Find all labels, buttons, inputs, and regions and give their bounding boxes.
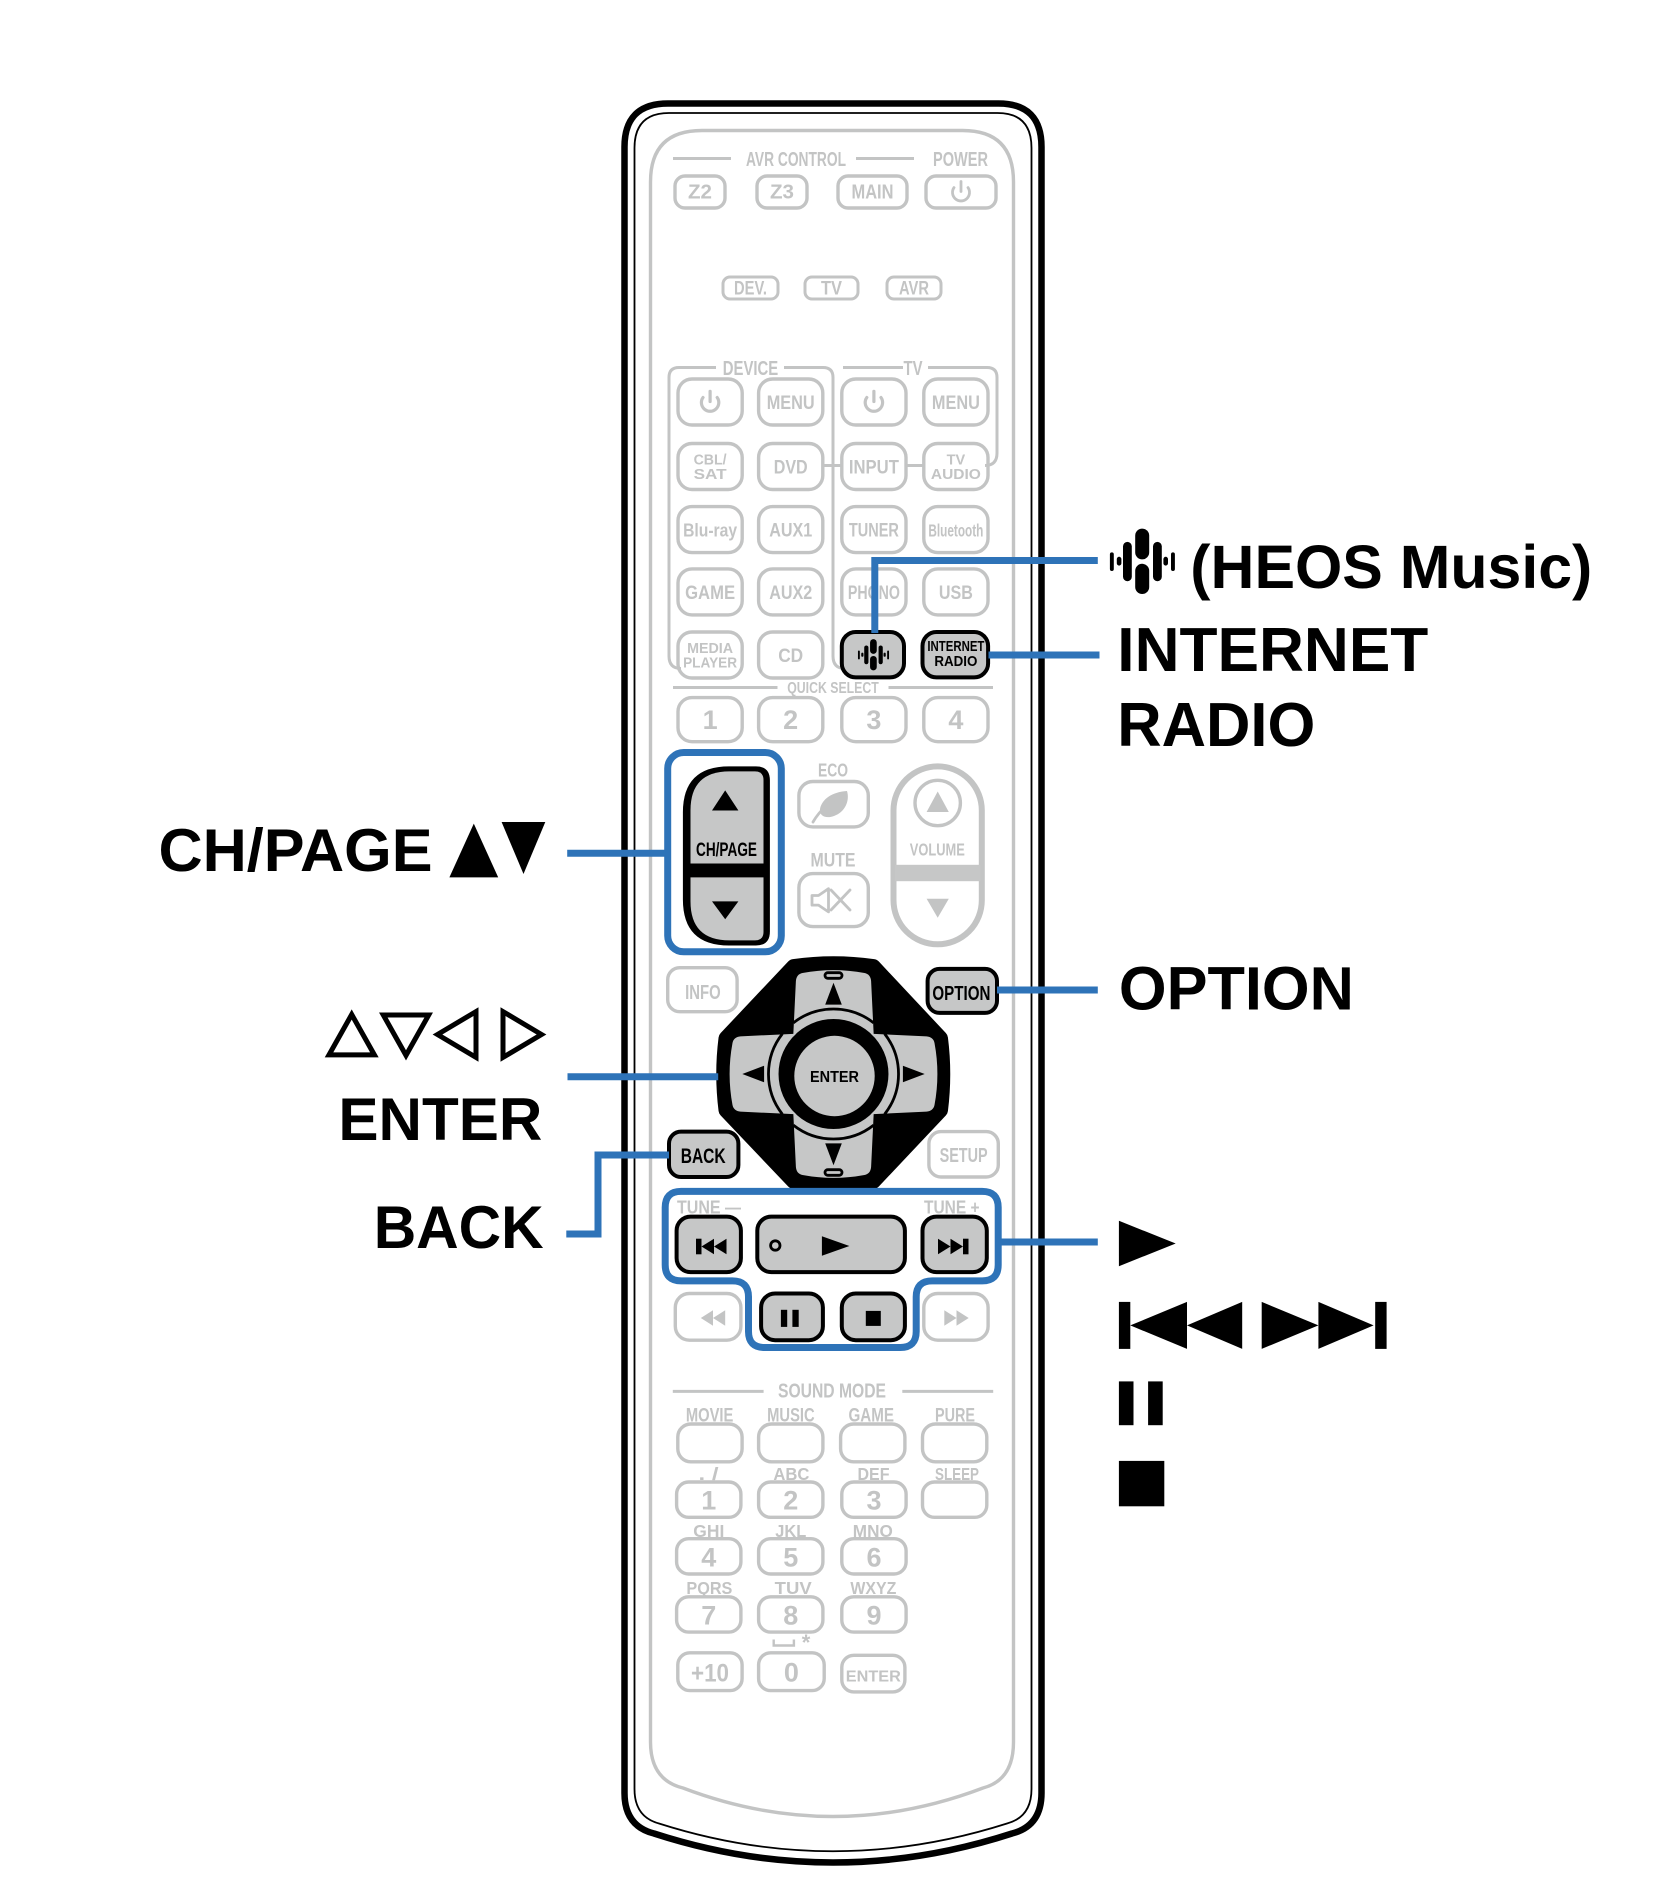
svg-text:TUNE —: TUNE — bbox=[677, 1197, 741, 1218]
svg-text:DEV.: DEV. bbox=[734, 279, 767, 300]
svg-text:MUTE: MUTE bbox=[811, 851, 856, 872]
svg-text:AVR CONTROL: AVR CONTROL bbox=[746, 149, 846, 171]
svg-text:AVR: AVR bbox=[899, 279, 929, 300]
svg-text:4: 4 bbox=[701, 1542, 716, 1572]
svg-text:ENTER: ENTER bbox=[846, 1668, 901, 1685]
svg-text:USB: USB bbox=[939, 582, 973, 604]
svg-text:BACK: BACK bbox=[374, 1194, 544, 1261]
svg-text:MENU: MENU bbox=[767, 392, 815, 414]
svg-text:7: 7 bbox=[701, 1601, 716, 1631]
svg-text:VOLUME: VOLUME bbox=[910, 839, 965, 859]
svg-text:DEVICE: DEVICE bbox=[723, 358, 779, 380]
svg-text:QUICK SELECT: QUICK SELECT bbox=[787, 680, 879, 697]
svg-text:ECO: ECO bbox=[818, 760, 848, 781]
svg-text:RADIO: RADIO bbox=[1117, 691, 1315, 760]
svg-text:4: 4 bbox=[948, 705, 963, 735]
svg-text:CH/PAGE: CH/PAGE bbox=[159, 817, 433, 884]
svg-text:PLAYER: PLAYER bbox=[683, 656, 737, 672]
svg-text:(HEOS Music): (HEOS Music) bbox=[1190, 533, 1592, 602]
svg-text:Bluetooth: Bluetooth bbox=[928, 521, 983, 541]
svg-text:DVD: DVD bbox=[774, 457, 808, 479]
svg-text:OPTION: OPTION bbox=[932, 983, 990, 1005]
svg-text:CD: CD bbox=[778, 645, 803, 667]
svg-text:SOUND MODE: SOUND MODE bbox=[778, 1380, 886, 1402]
svg-text:ENTER: ENTER bbox=[338, 1086, 542, 1153]
svg-text:Z2: Z2 bbox=[688, 182, 712, 204]
svg-text:RADIO: RADIO bbox=[934, 654, 977, 670]
svg-text:3: 3 bbox=[866, 1486, 881, 1516]
svg-text:INFO: INFO bbox=[685, 982, 721, 1004]
svg-text:SETUP: SETUP bbox=[940, 1145, 988, 1167]
svg-text:ENTER: ENTER bbox=[810, 1069, 859, 1086]
svg-text:INPUT: INPUT bbox=[849, 457, 899, 479]
svg-text:CH/PAGE: CH/PAGE bbox=[696, 839, 757, 861]
svg-text:TV: TV bbox=[821, 279, 842, 300]
svg-text:OPTION: OPTION bbox=[1119, 955, 1354, 1024]
svg-text:1: 1 bbox=[701, 1486, 716, 1516]
svg-text:Z3: Z3 bbox=[770, 182, 794, 204]
svg-text:9: 9 bbox=[866, 1601, 881, 1631]
svg-text:BACK: BACK bbox=[681, 1145, 726, 1168]
svg-text:2: 2 bbox=[783, 705, 798, 735]
svg-text:INTERNET: INTERNET bbox=[1117, 616, 1428, 685]
svg-text:+10: +10 bbox=[691, 1660, 729, 1688]
svg-text:MENU: MENU bbox=[932, 392, 980, 414]
svg-text:WXYZ: WXYZ bbox=[850, 1578, 896, 1598]
svg-text:TUNER: TUNER bbox=[849, 520, 899, 542]
svg-text:1: 1 bbox=[703, 705, 718, 735]
svg-text:5: 5 bbox=[783, 1542, 798, 1572]
svg-text:AUDIO: AUDIO bbox=[931, 467, 981, 483]
svg-text:TUV: TUV bbox=[775, 1578, 812, 1598]
svg-text:GAME: GAME bbox=[685, 582, 735, 604]
svg-text:0: 0 bbox=[784, 1658, 799, 1688]
svg-text:AUX1: AUX1 bbox=[769, 520, 812, 542]
svg-text:8: 8 bbox=[783, 1601, 798, 1631]
svg-text:SAT: SAT bbox=[694, 467, 727, 483]
svg-text:PQRS: PQRS bbox=[686, 1578, 732, 1598]
svg-text:TUNE +: TUNE + bbox=[924, 1197, 980, 1218]
svg-text:2: 2 bbox=[783, 1486, 798, 1516]
svg-text:3: 3 bbox=[866, 705, 881, 735]
svg-text:POWER: POWER bbox=[933, 149, 988, 171]
svg-text:6: 6 bbox=[866, 1542, 881, 1572]
svg-text:MAIN: MAIN bbox=[852, 182, 894, 204]
svg-text:AUX2: AUX2 bbox=[769, 582, 812, 604]
svg-text:INTERNET: INTERNET bbox=[927, 639, 984, 655]
svg-text:TV: TV bbox=[904, 358, 923, 380]
svg-text:Blu-ray: Blu-ray bbox=[683, 521, 737, 541]
